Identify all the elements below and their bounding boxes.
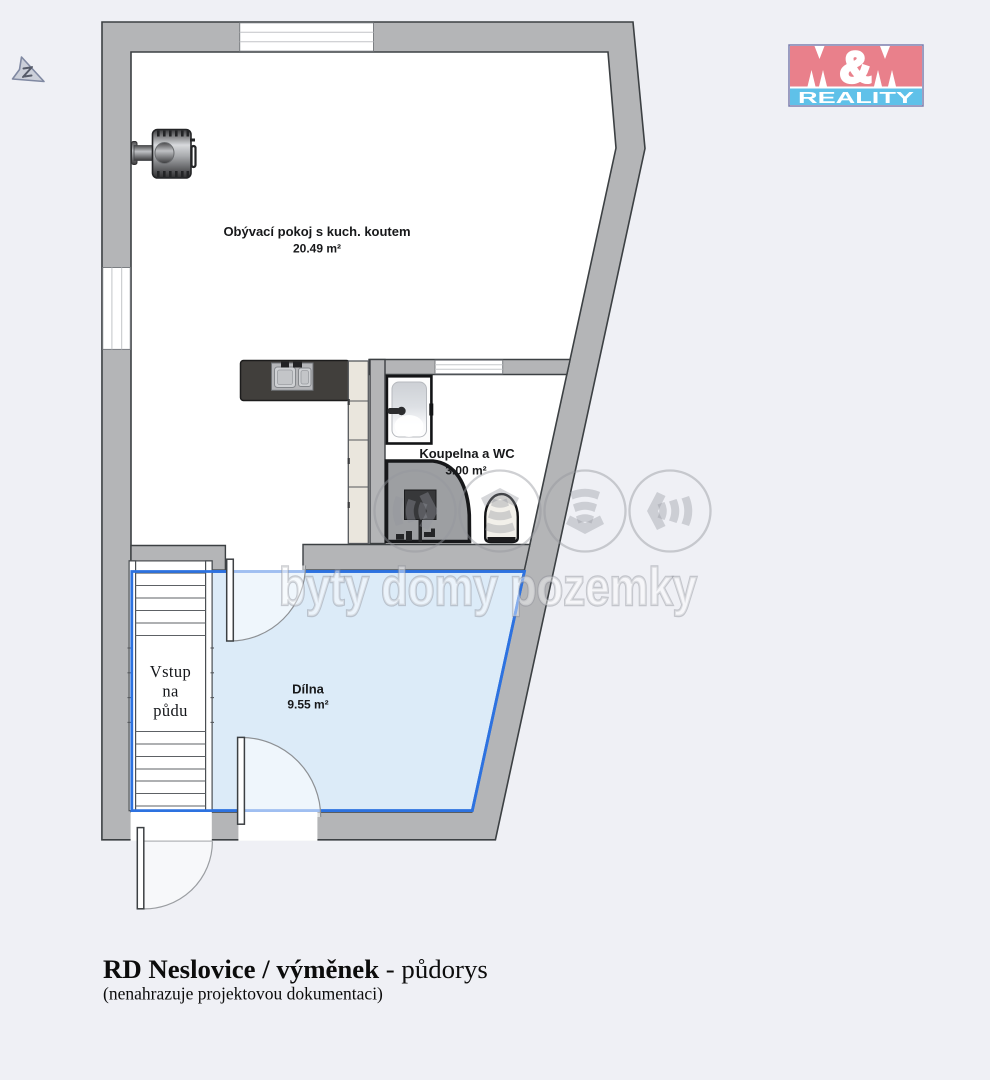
svg-text:RD Neslovice / výměnek - půdor: RD Neslovice / výměnek - půdorys — [103, 954, 488, 984]
svg-text:byty domy pozemky: byty domy pozemky — [279, 558, 697, 617]
svg-text:(nenahrazuje projektovou dokum: (nenahrazuje projektovou dokumentaci) — [103, 984, 383, 1004]
svg-text:půdu: půdu — [153, 701, 188, 720]
svg-text:Vstup: Vstup — [150, 662, 191, 681]
svg-text:3.00 m²: 3.00 m² — [445, 463, 486, 477]
svg-text:Obývací pokoj s kuch. koutem: Obývací pokoj s kuch. koutem — [223, 224, 410, 239]
svg-text:na: na — [162, 682, 179, 701]
svg-text:Koupelna a WC: Koupelna a WC — [419, 446, 515, 461]
svg-text:20.49 m²: 20.49 m² — [293, 242, 341, 256]
svg-text:REALITY: REALITY — [798, 90, 915, 107]
svg-text:Dílna: Dílna — [292, 682, 325, 697]
svg-text:&: & — [840, 43, 872, 92]
svg-text:9.55 m²: 9.55 m² — [287, 698, 328, 712]
